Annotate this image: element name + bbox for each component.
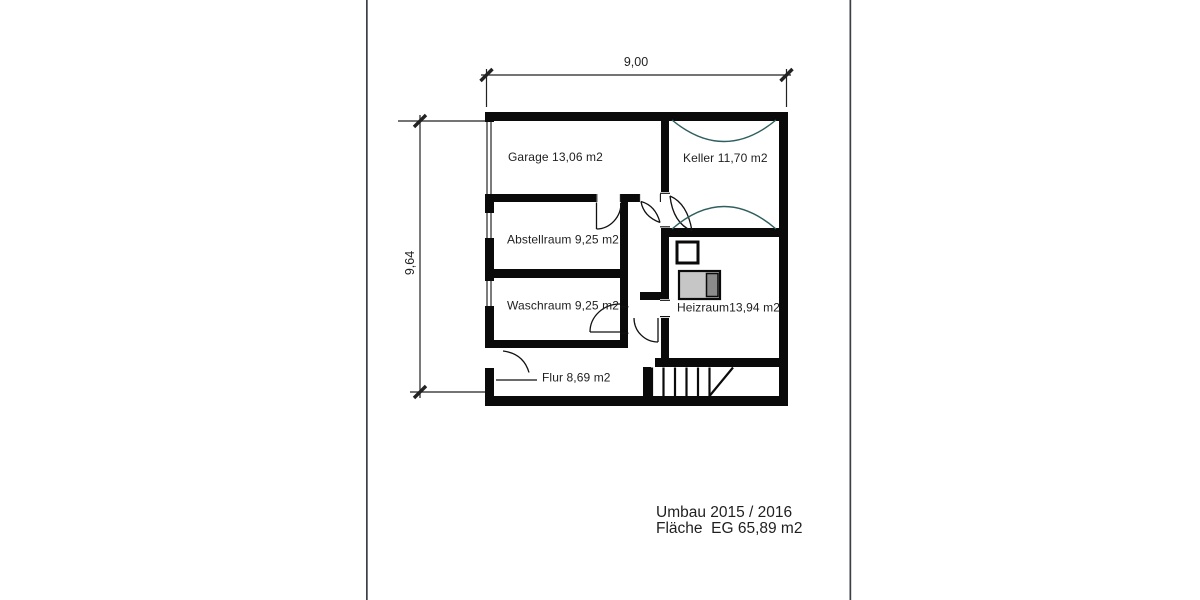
shaft-symbol — [677, 242, 698, 263]
room-label-garage: Garage 13,06 m2 — [508, 150, 603, 164]
wall-corridor-stub — [640, 292, 661, 300]
wall-corridor-right — [661, 121, 669, 363]
wall-heizraum-bottom — [655, 358, 788, 367]
staircase — [652, 368, 733, 397]
heizraum-door-opening — [660, 299, 670, 318]
waschraum-window-opening — [484, 281, 495, 306]
footer-line1: Umbau 2015 / 2016 — [656, 504, 792, 521]
wall-outer-bottom — [485, 396, 788, 406]
abstellraum-window-opening — [484, 213, 495, 238]
heizraum-fixtures — [677, 242, 720, 299]
wall-corridor-left — [620, 194, 628, 348]
keller-door-opening — [660, 192, 670, 228]
boiler-end — [707, 274, 719, 297]
door-leaf-garage-corridor — [641, 202, 660, 223]
wall-waschraum-bottom — [485, 340, 620, 348]
room-label-heizraum: Heizraum13,94 m2 — [677, 301, 780, 315]
door-swing-entry — [496, 351, 537, 380]
stair-treads — [652, 368, 710, 397]
vault-arc-bottom — [672, 207, 776, 230]
wall-stair-stub — [643, 367, 651, 397]
keller-vault-arcs — [672, 120, 776, 229]
room-label-abstellraum: Abstellraum 9,25 m2 — [507, 233, 619, 247]
door-swing-heizraum — [634, 318, 658, 342]
stair-cut-line — [710, 368, 734, 397]
room-label-flur: Flur 8,69 m2 — [542, 371, 611, 385]
door-leaf-keller — [670, 196, 692, 231]
document-page: 9,00 9,64 Garage 13,06 m2 Keller 11,70 m… — [0, 0, 1200, 600]
page-border-left — [366, 0, 368, 600]
footer-line2: Fläche EG 65,89 m2 — [656, 520, 802, 537]
dimension-top-label: 9,00 — [624, 55, 648, 69]
wall-keller-bottom — [669, 228, 788, 237]
floor-plan-drawing: 9,00 9,64 Garage 13,06 m2 Keller 11,70 m… — [0, 0, 1200, 600]
wall-abstellraum-bottom — [485, 269, 620, 278]
room-label-waschraum: Waschraum 9,25 m2 — [507, 299, 619, 313]
door-swing-garage-abstellraum — [597, 203, 622, 230]
vault-arc-top — [672, 120, 776, 142]
entry-door-opening — [484, 348, 495, 368]
wall-outer-top — [485, 112, 788, 121]
garage-abstellraum-door-opening — [596, 193, 621, 203]
dimension-left-label: 9,64 — [403, 251, 417, 275]
room-label-keller: Keller 11,70 m2 — [683, 151, 768, 165]
garage-door-opening — [484, 122, 495, 194]
page-border-right — [850, 0, 852, 600]
labels: 9,00 9,64 Garage 13,06 m2 Keller 11,70 m… — [403, 55, 802, 537]
